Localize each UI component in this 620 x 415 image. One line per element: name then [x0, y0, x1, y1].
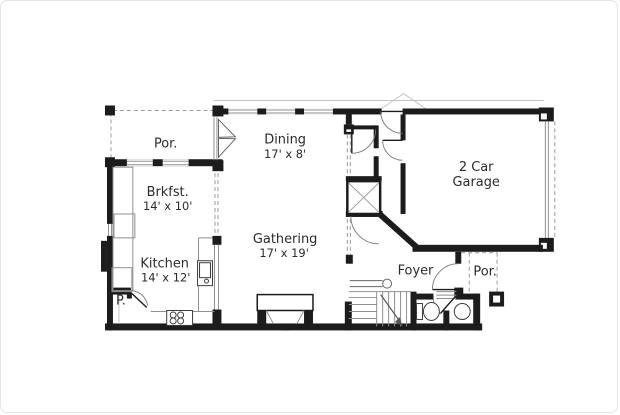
room-label-garage-line1: 2 Car	[459, 160, 494, 175]
winder-treads	[349, 298, 377, 319]
french-doors	[212, 117, 235, 171]
room-label-porch-left: Por.	[154, 136, 177, 151]
floor-plan-image: Por. Dining 17' x 8' 2 Car Garage Brkfst…	[0, 0, 618, 413]
room-size-brkfst: 14' x 10'	[143, 199, 192, 213]
room-label-pantry: P.	[116, 294, 126, 309]
front-steps	[436, 292, 456, 299]
room-size-dining: 17' x 8'	[264, 147, 306, 161]
garage-entry-door	[383, 140, 403, 160]
sink-icon	[454, 304, 470, 320]
stair-rail	[350, 281, 383, 287]
closet-x-box	[347, 181, 380, 214]
eave-lines	[213, 94, 543, 109]
garage-diagonal-wall	[381, 215, 419, 249]
room-label-brkfst: Brkfst.	[147, 185, 189, 200]
back-stoop-door	[381, 111, 403, 133]
room-label-porch-right: Por.	[473, 265, 496, 280]
floor-plan-svg: Por. Dining 17' x 8' 2 Car Garage Brkfst…	[1, 1, 618, 413]
stair-arrow	[381, 295, 401, 323]
room-label-gathering: Gathering	[253, 232, 317, 247]
room-label-kitchen: Kitchen	[140, 257, 189, 272]
stairs	[349, 279, 411, 326]
room-label-foyer: Foyer	[398, 264, 434, 279]
pantry-door	[131, 291, 148, 308]
west-builtins	[112, 167, 135, 291]
cooktop-icon	[167, 311, 193, 326]
left-wall	[107, 159, 113, 330]
mudroom-door	[352, 129, 376, 153]
south-wall	[105, 323, 482, 330]
garage-door	[545, 121, 554, 237]
room-size-kitchen: 14' x 12'	[141, 271, 190, 285]
room-label-garage-line2: Garage	[453, 175, 500, 190]
room-labels: Por. Dining 17' x 8' 2 Car Garage Brkfst…	[116, 132, 500, 308]
porch-post	[105, 105, 115, 115]
room-size-gathering: 17' x 19'	[259, 246, 308, 260]
toilet-icon	[416, 303, 439, 321]
room-label-dining: Dining	[264, 132, 306, 147]
closet-door	[351, 216, 379, 244]
rail-volute	[383, 279, 392, 288]
